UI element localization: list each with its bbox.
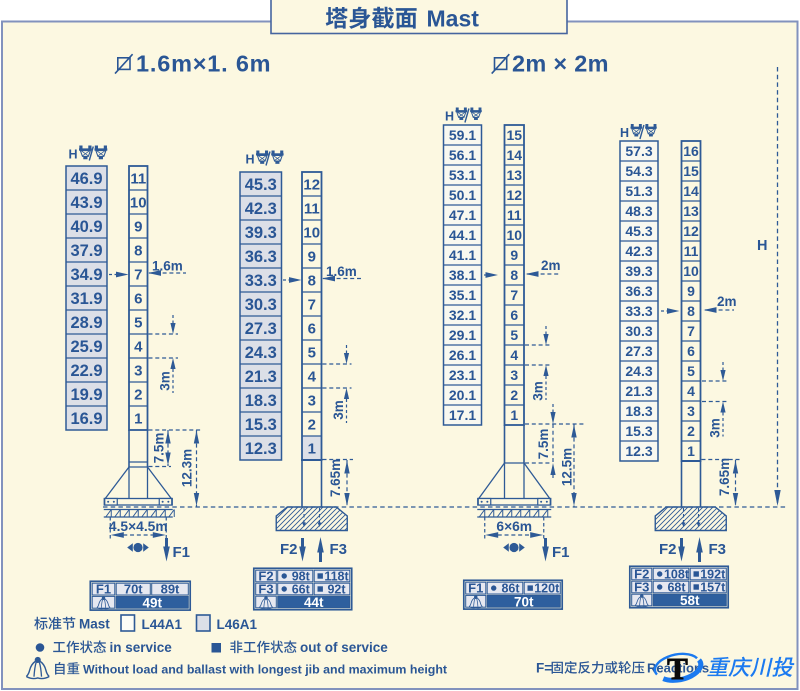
svg-text:5: 5 [687,363,695,379]
svg-text:22.9: 22.9 [70,362,102,380]
svg-text:1: 1 [308,440,316,457]
svg-text:14: 14 [683,183,699,199]
svg-text:10: 10 [683,263,699,279]
svg-text:24.3: 24.3 [245,344,277,362]
svg-text:20.1: 20.1 [449,387,476,403]
svg-text:F2: F2 [280,541,298,558]
svg-text:F1: F1 [468,581,483,596]
svg-text:118t: 118t [324,569,349,583]
svg-text:9: 9 [687,283,695,299]
svg-text:6: 6 [134,290,142,307]
svg-text:1: 1 [134,410,142,427]
svg-text:H: H [69,147,78,161]
svg-text:42.3: 42.3 [625,243,652,259]
svg-text:92t: 92t [327,582,346,596]
svg-text:12: 12 [506,187,522,203]
svg-text:54.3: 54.3 [625,163,652,179]
svg-text:14: 14 [506,147,522,163]
svg-text:7.65m: 7.65m [328,459,343,497]
svg-text:21.3: 21.3 [245,368,277,386]
svg-text:26.1: 26.1 [449,347,476,363]
svg-text:18.3: 18.3 [625,403,652,419]
svg-text:70t: 70t [124,582,143,597]
svg-text:T: T [667,651,688,686]
svg-text:2: 2 [687,423,695,439]
svg-text:12: 12 [683,223,699,239]
svg-text:49t: 49t [142,595,162,610]
svg-text:30.3: 30.3 [625,323,652,339]
svg-text:4: 4 [510,347,518,363]
svg-text:36.3: 36.3 [245,248,277,266]
svg-text:28.9: 28.9 [70,314,102,332]
svg-text:15.3: 15.3 [625,423,652,439]
svg-text:9: 9 [308,248,316,265]
svg-text:15: 15 [506,127,522,143]
svg-text:53.1: 53.1 [449,167,476,183]
svg-text:6: 6 [687,343,695,359]
svg-text:11: 11 [507,207,522,223]
svg-text:3m: 3m [158,371,173,391]
svg-text:8: 8 [687,303,695,319]
svg-text:44.1: 44.1 [449,227,476,243]
svg-text:5: 5 [134,314,142,331]
svg-text:9: 9 [134,218,142,235]
svg-text:7.5m: 7.5m [536,429,551,460]
svg-text:1.6m×1. 6m: 1.6m×1. 6m [136,51,271,77]
svg-text:36.3: 36.3 [625,283,652,299]
svg-text:2: 2 [134,386,142,403]
svg-text:7.65m: 7.65m [717,458,732,496]
svg-text:F2: F2 [659,541,677,558]
svg-text:3m: 3m [331,400,346,420]
svg-text:43.9: 43.9 [70,194,102,212]
svg-text:7.5m: 7.5m [152,433,167,464]
svg-text:8: 8 [308,272,316,289]
svg-text:5: 5 [510,327,518,343]
svg-text:10: 10 [303,224,320,241]
svg-text:157t: 157t [700,580,726,594]
svg-text:F=: F= [536,661,552,676]
svg-text:98t: 98t [292,569,311,583]
svg-text:in service: in service [110,640,173,655]
svg-text:32.1: 32.1 [449,307,476,323]
svg-text:44t: 44t [304,595,324,610]
svg-text:4: 4 [687,383,695,399]
svg-text:2m: 2m [717,294,737,309]
svg-text:39.3: 39.3 [245,224,277,242]
svg-text:8: 8 [510,267,518,283]
svg-text:120t: 120t [534,582,560,596]
svg-text:15: 15 [683,163,699,179]
svg-text:23.1: 23.1 [449,367,476,383]
svg-text:33.3: 33.3 [625,303,652,319]
svg-text:12.5m: 12.5m [560,448,575,486]
svg-text:F1: F1 [96,582,111,597]
svg-text:3: 3 [687,403,695,419]
svg-text:11: 11 [684,243,699,259]
svg-text:F1: F1 [552,544,570,561]
svg-text:3: 3 [510,367,518,383]
svg-text:59.1: 59.1 [449,127,476,143]
svg-text:2m: 2m [541,258,561,273]
svg-text:24.3: 24.3 [625,363,652,379]
svg-text:6×6m: 6×6m [496,519,532,534]
svg-text:57.3: 57.3 [625,143,652,159]
svg-text:F3: F3 [258,582,273,597]
svg-text:12: 12 [303,176,320,193]
svg-text:F3: F3 [330,541,348,558]
svg-text:2m × 2m: 2m × 2m [512,51,609,77]
svg-text:3: 3 [308,392,316,409]
svg-text:3: 3 [134,362,142,379]
svg-text:45.3: 45.3 [245,176,277,194]
svg-text:7: 7 [308,296,316,313]
svg-text:16.9: 16.9 [70,410,102,428]
svg-text:6: 6 [510,307,518,323]
svg-text:9: 9 [510,247,518,263]
svg-text:30.3: 30.3 [245,296,277,314]
svg-text:11: 11 [304,200,320,217]
svg-text:H: H [757,238,767,254]
svg-text:29.1: 29.1 [449,327,476,343]
svg-text:89t: 89t [161,582,180,597]
svg-text:1: 1 [687,443,695,459]
svg-text:19.9: 19.9 [70,386,102,404]
svg-text:10: 10 [130,194,147,211]
svg-text:12.3: 12.3 [625,443,652,459]
svg-text:7: 7 [134,266,142,283]
svg-text:F3: F3 [709,541,727,558]
svg-text:H: H [246,152,255,166]
svg-text:Mast: Mast [79,617,110,632]
svg-text:21.3: 21.3 [625,383,652,399]
svg-text:4: 4 [134,338,143,355]
svg-text:108t: 108t [664,567,690,581]
svg-text:33.3: 33.3 [245,272,277,290]
svg-text:1: 1 [510,407,518,423]
svg-text:31.9: 31.9 [70,290,102,308]
svg-text:2: 2 [510,387,518,403]
svg-text:11: 11 [130,170,146,187]
svg-text:46.9: 46.9 [70,170,102,188]
svg-text:50.1: 50.1 [449,187,476,203]
svg-text:40.9: 40.9 [70,218,102,236]
svg-text:6: 6 [308,320,316,337]
svg-text:41.1: 41.1 [449,247,476,263]
svg-text:45.3: 45.3 [625,223,652,239]
svg-text:F1: F1 [173,544,191,561]
svg-text:3m: 3m [531,381,546,401]
svg-text:3m: 3m [708,418,723,438]
svg-text:L46A1: L46A1 [217,617,258,632]
svg-text:out of service: out of service [300,640,388,655]
svg-text:7: 7 [687,323,695,339]
svg-text:35.1: 35.1 [449,287,476,303]
svg-text:37.9: 37.9 [70,242,102,260]
svg-text:8: 8 [134,242,142,259]
svg-text:25.9: 25.9 [70,338,102,356]
svg-text:13: 13 [683,203,699,219]
svg-text:58t: 58t [680,593,700,608]
svg-text:Mast: Mast [427,6,480,32]
svg-text:27.3: 27.3 [245,320,277,338]
svg-text:10: 10 [506,227,522,243]
svg-text:L44A1: L44A1 [142,617,183,632]
svg-text:13: 13 [506,167,522,183]
svg-text:F3: F3 [634,580,649,595]
svg-text:51.3: 51.3 [625,183,652,199]
svg-text:27.3: 27.3 [625,343,652,359]
svg-text:38.1: 38.1 [449,267,476,283]
svg-text:H: H [620,126,629,140]
svg-text:H: H [445,109,454,123]
svg-text:39.3: 39.3 [625,263,652,279]
svg-text:48.3: 48.3 [625,203,652,219]
svg-text:4.5×4.5m: 4.5×4.5m [109,519,168,534]
svg-text:42.3: 42.3 [245,200,277,218]
svg-text:17.1: 17.1 [449,407,476,423]
svg-text:34.9: 34.9 [70,266,102,284]
svg-text:7: 7 [510,287,518,303]
svg-text:70t: 70t [514,594,534,609]
svg-text:12.3m: 12.3m [180,449,195,487]
svg-text:192t: 192t [700,567,726,581]
svg-text:12.3: 12.3 [245,440,277,458]
svg-text:56.1: 56.1 [449,147,476,163]
svg-text:47.1: 47.1 [449,207,476,223]
svg-text:2: 2 [308,416,316,433]
svg-text:Without load and ballast with: Without load and ballast with longest ji… [83,663,447,677]
svg-text:4: 4 [308,368,317,385]
svg-text:5: 5 [308,344,316,361]
svg-text:16: 16 [683,143,699,159]
svg-text:18.3: 18.3 [245,392,277,410]
svg-text:15.3: 15.3 [245,416,277,434]
